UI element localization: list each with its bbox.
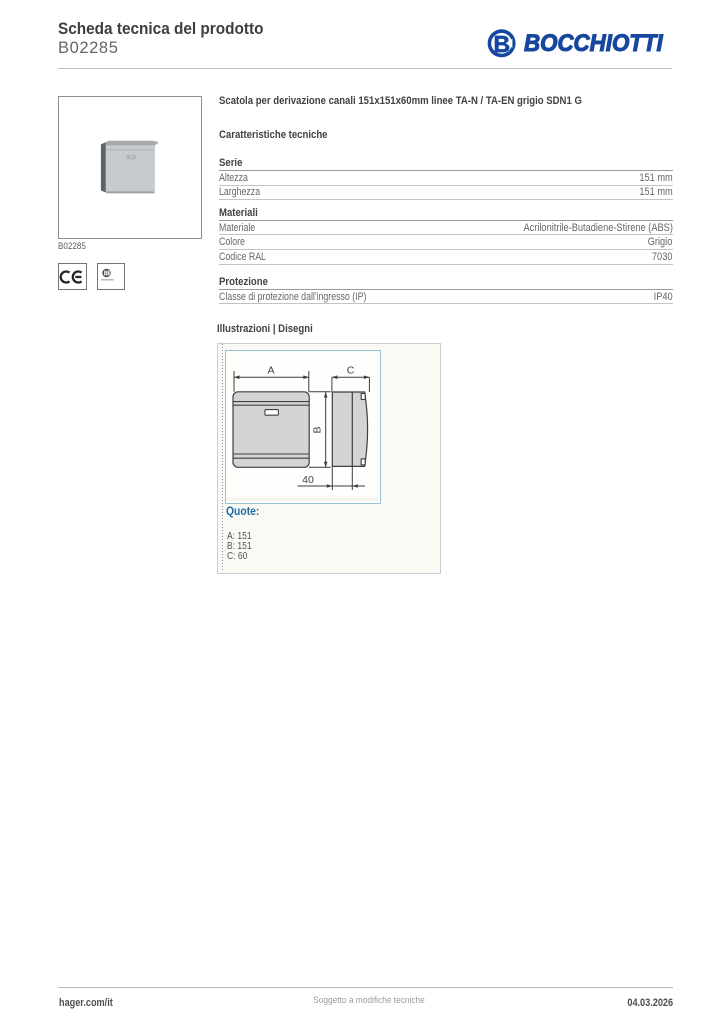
- svg-text:B: B: [311, 426, 323, 433]
- svg-text:40: 40: [302, 474, 314, 486]
- svg-text:BOCCHIOTTI: BOCCHIOTTI: [524, 29, 663, 56]
- svg-text:A: A: [267, 365, 274, 377]
- svg-text:C: C: [346, 365, 354, 377]
